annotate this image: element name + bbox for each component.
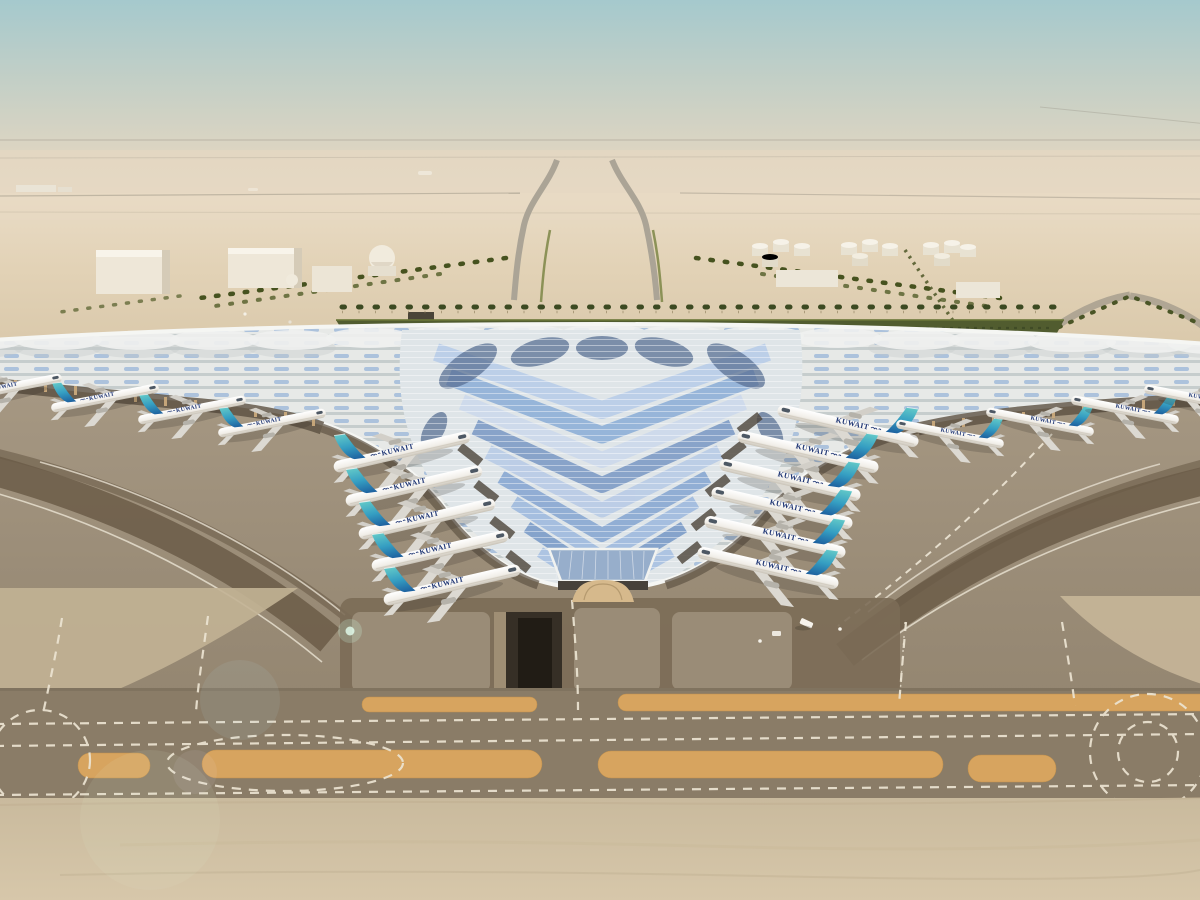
airport-rendering: KUWAIT KUWAIT (0, 0, 1200, 900)
distant-structure (248, 188, 258, 191)
prow-glass-facade (549, 549, 657, 581)
warehouse (776, 270, 838, 287)
bollard (838, 627, 842, 631)
trench-shadow (518, 618, 552, 690)
service-vehicle (772, 631, 781, 636)
distant-structure (418, 171, 432, 175)
pavement-island (672, 612, 792, 690)
warehouse-roof (96, 250, 170, 257)
distant-car (288, 320, 291, 323)
trench-ramp (494, 612, 506, 696)
warehouse-roof (228, 248, 302, 254)
dome-building-small (286, 274, 298, 286)
warehouse-side (162, 250, 170, 294)
distant-building (16, 185, 56, 192)
warehouse (956, 282, 1000, 298)
distant-building (58, 187, 72, 192)
pavement-island (352, 612, 490, 692)
horizon-haze (0, 150, 1200, 220)
dome-base (368, 266, 396, 276)
distant-car (243, 312, 246, 315)
bollard (758, 639, 762, 643)
warehouse (312, 266, 352, 292)
pavement-island (574, 608, 660, 692)
